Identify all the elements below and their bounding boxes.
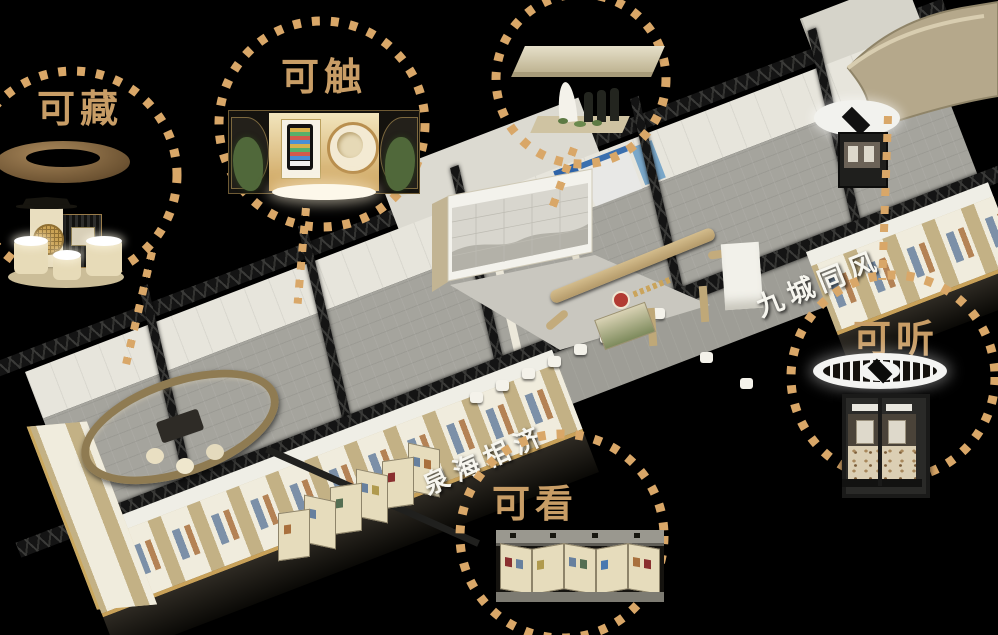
cube-stool [470, 392, 483, 403]
gallery-panel [500, 543, 532, 595]
pavilion-eave [16, 204, 77, 209]
cube-stool [548, 356, 561, 367]
wooden-ring-hole [26, 149, 100, 167]
canopy-slab [511, 46, 665, 77]
booth-display-case [888, 420, 906, 444]
gallery-panel [596, 543, 628, 595]
callout-label-view: 可看 [492, 473, 578, 528]
callout-label-touch: 可触 [281, 46, 367, 101]
booth-display-case [856, 420, 874, 444]
gallery-floor [496, 592, 664, 602]
gallery-panel [532, 543, 564, 595]
relic-window [327, 122, 379, 174]
booth-sign [886, 404, 912, 411]
bush [574, 121, 586, 127]
booth-display-case [864, 146, 874, 162]
tablet-screen [290, 128, 310, 160]
gallery-panel [564, 543, 596, 595]
stool [176, 458, 194, 474]
stool [146, 448, 164, 464]
booth-sign [852, 404, 878, 411]
tablet-dock [290, 161, 310, 166]
track-light-icon [592, 533, 598, 538]
relic-disc [337, 132, 363, 158]
gallery-panel [278, 509, 310, 561]
booth-structure [838, 132, 888, 188]
stele [584, 92, 593, 122]
touch-wall [228, 110, 420, 194]
bush [592, 120, 602, 126]
gallery-panel [628, 543, 660, 595]
booth-base [842, 479, 922, 487]
display-pedestal [14, 240, 48, 274]
stele [597, 90, 606, 122]
callout-ring-model [488, 0, 674, 172]
tablet-icon [287, 124, 313, 170]
stele [610, 88, 619, 121]
booth-center-post [878, 398, 882, 486]
callout-label-collect: 可藏 [37, 78, 123, 133]
booth-speckled-panel [848, 446, 916, 479]
display-pedestal [86, 240, 122, 276]
cube-stool [496, 380, 509, 391]
booth-display-case [848, 146, 858, 162]
cube-stool [700, 352, 713, 363]
touch-exhibit-base [272, 184, 376, 200]
cube-stool [740, 378, 753, 389]
cube-stool [574, 344, 587, 355]
track-light-icon [634, 533, 640, 538]
exhibition-design-poster: 泉海相济 九城同风 可藏 可触 [0, 0, 998, 635]
entrance-seal-icon [612, 291, 630, 309]
view-gallery [496, 530, 664, 602]
display-pedestal [53, 254, 81, 280]
gallery-top-beam [496, 530, 664, 546]
listening-booth [842, 394, 930, 498]
listen-light-ring [813, 353, 947, 389]
track-light-icon [510, 533, 516, 538]
bush [558, 118, 568, 124]
track-light-icon [550, 533, 556, 538]
cube-stool [522, 368, 535, 379]
stool [206, 444, 224, 460]
booth-glass-interior [848, 414, 916, 446]
